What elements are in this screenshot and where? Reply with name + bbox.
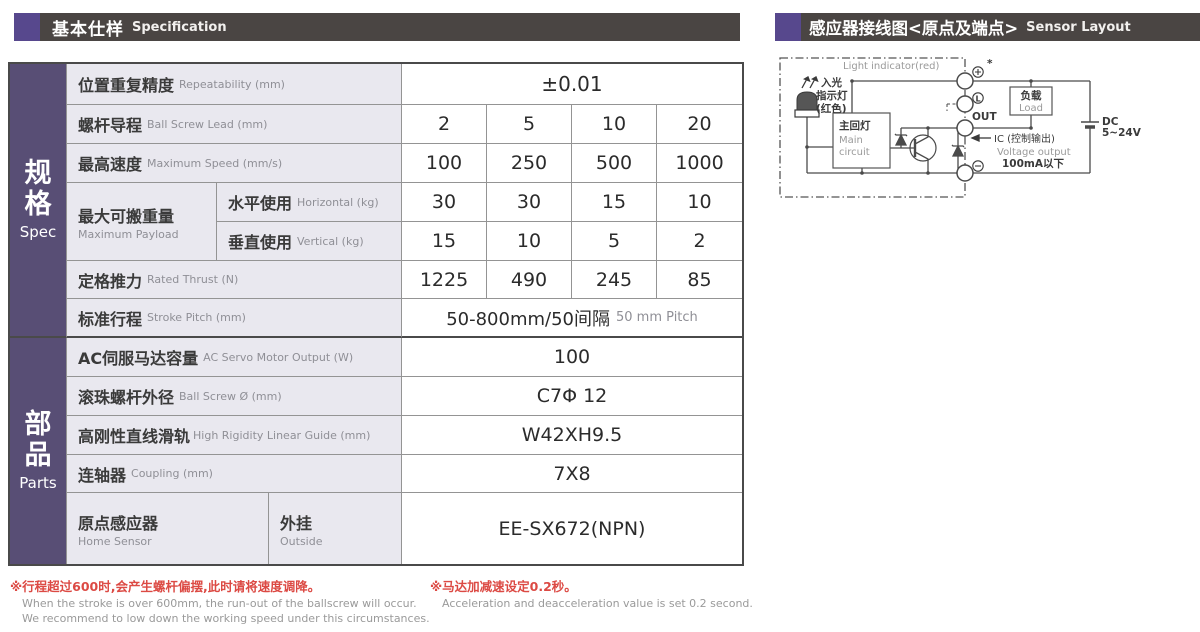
lead-value-1: 2: [402, 105, 487, 144]
battery-icon: [1081, 122, 1099, 127]
speed-value-2: 250: [487, 144, 572, 183]
sensor-header-title-zh: 感应器接线图<原点及端点>: [809, 15, 1018, 39]
coupling-value: 7X8: [402, 455, 742, 493]
payload-v-value-4: 2: [657, 222, 742, 261]
lead-value-3: 10: [572, 105, 657, 144]
minus-terminal-icon: [973, 161, 983, 171]
purple-accent-square: [775, 13, 801, 41]
current-limit-label: 100mA以下: [1002, 158, 1064, 170]
thrust-value-1: 1225: [402, 261, 487, 299]
linear-guide-value: W42XH9.5: [402, 416, 742, 455]
ic-output-arrow-icon: [972, 135, 991, 141]
main-circuit-en2: circuit: [839, 147, 870, 158]
ball-screw-dia-value: C7Φ 12: [402, 377, 742, 416]
svg-text:L: L: [975, 95, 980, 104]
payload-h-value-4: 10: [657, 183, 742, 222]
footnote-left-zh: ※行程超过600时,会产生螺杆偏摆,此时请将速度调降。: [10, 576, 430, 595]
purple-accent-square: [14, 13, 40, 41]
row-servo-output-label: AC伺服马达容量 AC Servo Motor Output (W): [67, 338, 402, 377]
sidebar-parts-zh1: 部: [25, 409, 52, 440]
payload-vertical-label: 垂直使用 Vertical (kg): [217, 222, 402, 261]
payload-v-value-3: 5: [572, 222, 657, 261]
speed-value-4: 1000: [657, 144, 742, 183]
sidebar-spec-zh1: 规: [25, 158, 52, 189]
row-ball-screw-lead-label: 螺杆导程 Ball Screw Lead (mm): [67, 105, 402, 144]
sidebar-spec-en: Spec: [20, 223, 57, 241]
footnote-right-zh: ※马达加减速设定0.2秒。: [430, 576, 753, 595]
sidebar-spec: 规 格 Spec: [10, 64, 67, 338]
main-circuit-zh: 主回灯: [839, 119, 871, 132]
speed-value-3: 500: [572, 144, 657, 183]
thrust-value-3: 245: [572, 261, 657, 299]
row-linear-guide-label: 高刚性直线滑轨 High Rigidity Linear Guide (mm): [67, 416, 402, 455]
footnotes: ※行程超过600时,会产生螺杆偏摆,此时请将速度调降。 When the str…: [10, 576, 770, 625]
row-stroke-pitch-label: 标准行程 Stroke Pitch (mm): [67, 299, 402, 338]
thrust-value-2: 490: [487, 261, 572, 299]
repeatability-value: ±0.01: [402, 64, 742, 105]
main-circuit-en1: Main: [839, 135, 863, 146]
payload-horizontal-label: 水平使用 Horizontal (kg): [217, 183, 402, 222]
load-zh: 负载: [1021, 89, 1043, 102]
plus-terminal-icon: [973, 67, 983, 77]
speed-value-1: 100: [402, 144, 487, 183]
ic-output-label: IC (控制输出): [994, 132, 1055, 145]
footnote-left-en1: When the stroke is over 600mm, the run-o…: [22, 597, 430, 610]
sidebar-parts-en: Parts: [19, 474, 56, 492]
sensor-diagram-svg: 主回灯 Main circuit 负载 Load * L OUT Light i…: [775, 50, 1200, 200]
light-terminal-icon: L: [973, 93, 983, 104]
footnote-left: ※行程超过600时,会产生螺杆偏摆,此时请将速度调降。 When the str…: [10, 576, 430, 625]
home-sensor-mount-label: 外挂 Outside: [269, 493, 402, 564]
dc-label-2: 5~24V: [1102, 127, 1142, 139]
led-label-zh2: 指示灯: [816, 89, 848, 102]
row-coupling-label: 连轴器 Coupling (mm): [67, 455, 402, 493]
row-repeatability-label: 位置重复精度 Repeatability (mm): [67, 64, 402, 105]
payload-h-value-2: 30: [487, 183, 572, 222]
footnote-right: ※马达加减速设定0.2秒。 Acceleration and deacceler…: [430, 576, 753, 625]
spec-header-title-zh: 基本仕样: [52, 15, 124, 40]
lead-value-2: 5: [487, 105, 572, 144]
row-max-speed-label: 最高速度 Maximum Speed (mm/s): [67, 144, 402, 183]
incident-light-arrows-icon: [802, 77, 818, 88]
row-ball-screw-dia-label: 滚珠螺杆外径 Ball Screw Ø (mm): [67, 377, 402, 416]
spec-section-header: 基本仕样 Specification: [14, 13, 740, 41]
sidebar-spec-zh2: 格: [25, 189, 52, 220]
sidebar-parts: 部 品 Parts: [10, 338, 67, 564]
spec-table: 规 格 Spec 部 品 Parts 位置重复精度 Repeatability …: [8, 62, 744, 566]
payload-v-value-2: 10: [487, 222, 572, 261]
servo-output-value: 100: [402, 338, 742, 377]
row-rated-thrust-label: 定格推力 Rated Thrust (N): [67, 261, 402, 299]
spec-header-title-en: Specification: [132, 20, 227, 35]
led-label-zh3: (红色): [816, 102, 847, 115]
payload-h-value-3: 15: [572, 183, 657, 222]
footnote-right-en: Acceleration and deacceleration value is…: [442, 597, 753, 610]
footnote-left-en2: We recommend to low down the working spe…: [22, 612, 430, 625]
row-max-payload-label: 最大可搬重量 Maximum Payload: [67, 183, 217, 261]
out-terminal-label: OUT: [972, 111, 997, 123]
sidebar-parts-zh2: 品: [25, 440, 52, 471]
row-home-sensor-label: 原点感应器 Home Sensor: [67, 493, 269, 564]
asterisk-mark: *: [987, 58, 993, 70]
payload-v-value-1: 15: [402, 222, 487, 261]
light-on-dashed-link: [947, 104, 957, 111]
home-sensor-value: EE-SX672(NPN): [402, 493, 742, 564]
stroke-pitch-value: 50-800mm/50间隔 50 mm Pitch: [402, 299, 742, 338]
terminal-circles: [957, 73, 973, 181]
sensor-wiring-diagram: 主回灯 Main circuit 负载 Load * L OUT Light i…: [775, 50, 1200, 200]
led-label-zh1: 入光: [821, 76, 842, 89]
thrust-value-4: 85: [657, 261, 742, 299]
load-en: Load: [1019, 103, 1043, 114]
voltage-output-label: Voltage output: [997, 147, 1071, 158]
sensor-section-header: 感应器接线图<原点及端点> Sensor Layout: [775, 13, 1200, 41]
lead-value-4: 20: [657, 105, 742, 144]
payload-h-value-1: 30: [402, 183, 487, 222]
sensor-header-title-en: Sensor Layout: [1026, 20, 1131, 35]
light-indicator-en-label: Light indicator(red): [843, 61, 939, 72]
